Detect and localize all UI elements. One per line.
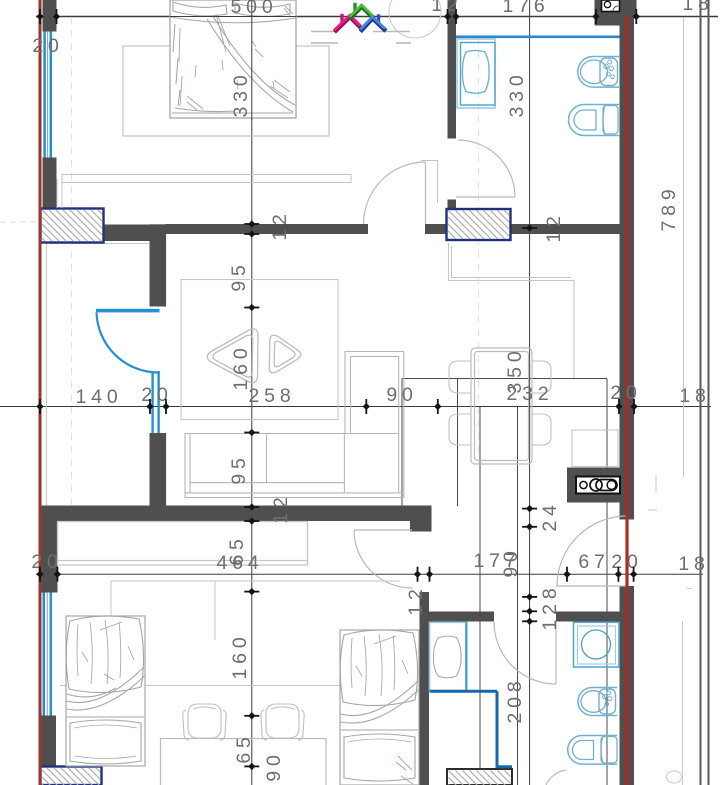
svg-text:140: 140	[76, 386, 123, 408]
svg-text:18: 18	[678, 553, 709, 575]
svg-text:18: 18	[679, 385, 710, 407]
svg-text:90: 90	[386, 384, 417, 406]
svg-text:789: 789	[658, 185, 680, 232]
svg-text:330: 330	[506, 71, 528, 118]
svg-text:67: 67	[578, 551, 609, 573]
svg-text:95: 95	[228, 260, 250, 291]
svg-text:90: 90	[500, 546, 522, 577]
svg-text:160: 160	[229, 633, 251, 680]
svg-text:160: 160	[230, 344, 252, 391]
svg-text:128: 128	[539, 584, 561, 631]
svg-text:12: 12	[405, 584, 427, 615]
svg-text:176: 176	[503, 0, 550, 17]
svg-text:12: 12	[269, 209, 291, 240]
svg-text:20: 20	[141, 384, 172, 406]
svg-text:20: 20	[610, 382, 641, 404]
svg-text:208: 208	[504, 677, 526, 724]
svg-text:20: 20	[611, 551, 642, 573]
svg-text:18: 18	[682, 0, 713, 15]
svg-text:258: 258	[249, 385, 296, 407]
svg-text:330: 330	[230, 71, 252, 118]
svg-text:95: 95	[228, 453, 250, 484]
svg-text:65: 65	[226, 534, 248, 565]
svg-text:90: 90	[263, 750, 285, 781]
svg-text:12: 12	[543, 211, 565, 242]
svg-text:65: 65	[233, 732, 255, 763]
svg-text:350: 350	[504, 347, 526, 394]
svg-text:24: 24	[539, 500, 561, 531]
svg-text:20: 20	[32, 35, 63, 57]
svg-text:500: 500	[231, 0, 278, 18]
svg-text:12: 12	[270, 492, 292, 523]
